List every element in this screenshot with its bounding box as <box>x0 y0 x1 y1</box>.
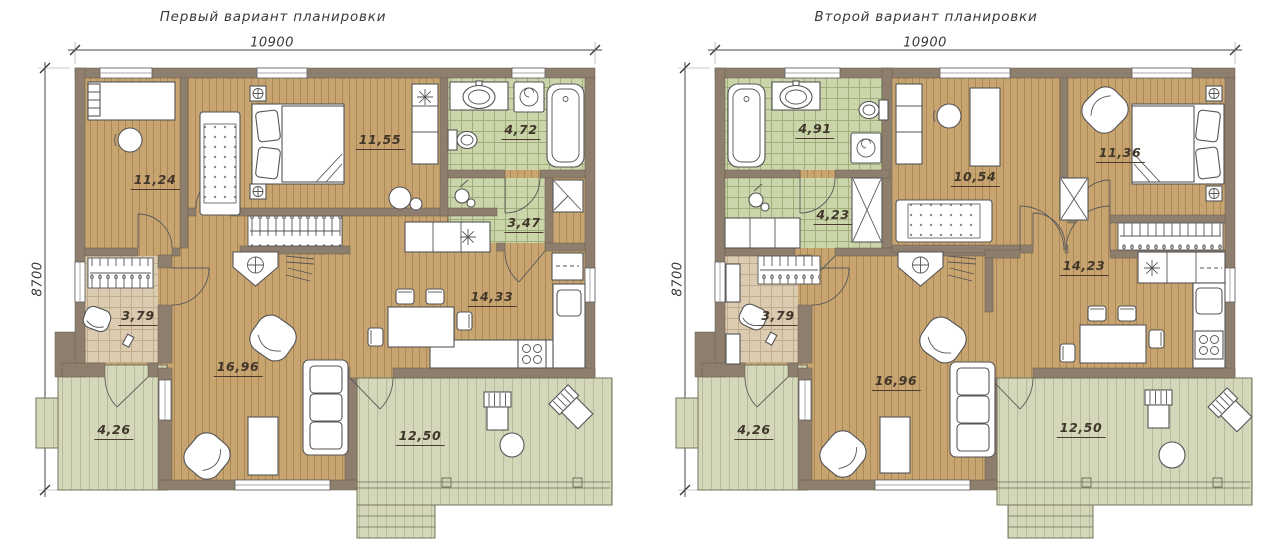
coffee-table <box>248 417 278 475</box>
floor-plan-drawing-2 <box>640 0 1280 547</box>
room-label-study: 11,24 <box>131 172 180 190</box>
room-label-terrace: 12,50 <box>1057 420 1106 438</box>
bathtub-icon <box>547 84 584 167</box>
plan-variant-1: Первый вариант планировки 10900 8700 11,… <box>0 0 640 547</box>
room-label-bedroom: 11,36 <box>1096 145 1145 163</box>
chair-icon <box>457 312 472 330</box>
chair-icon <box>396 289 414 304</box>
stool-icon <box>389 187 411 209</box>
floor-plan-drawing-1 <box>0 0 640 547</box>
room-label-bedroom: 11,55 <box>356 132 405 150</box>
width-dimension: 10900 <box>250 36 294 51</box>
chair-icon <box>1149 330 1164 348</box>
room-label-porch: 4,26 <box>94 422 133 440</box>
room-label-bathroom: 4,91 <box>795 121 834 139</box>
room-label-living: 16,96 <box>872 373 921 391</box>
room-label-bathroom: 4,72 <box>501 122 540 140</box>
terrace-steps <box>357 505 435 538</box>
width-dimension: 10900 <box>903 36 947 51</box>
floor-plan-sheet: { "plans": [ { "title": "Первый вариант … <box>0 0 1280 547</box>
room-label-entry: 3,79 <box>118 308 157 326</box>
stove-icon <box>1195 331 1223 359</box>
desk <box>88 82 175 120</box>
room-label-porch: 4,26 <box>734 422 773 440</box>
deck-chair-icon <box>484 392 511 430</box>
sofa-icon <box>303 360 348 455</box>
wardrobe <box>896 84 922 164</box>
side-step <box>36 398 58 448</box>
bed-icon <box>252 104 344 184</box>
chair-icon <box>1060 344 1075 362</box>
quilted-sofa-icon <box>896 200 992 242</box>
plan-title: Второй вариант планировки <box>814 9 1037 25</box>
room-label-kitchen: 14,23 <box>1060 258 1109 276</box>
dining-table <box>388 307 454 347</box>
deck-chair-icon <box>1145 390 1172 428</box>
toilet-icon <box>859 100 888 120</box>
chair-icon <box>368 328 383 346</box>
stove-icon <box>518 340 546 368</box>
sofa-icon <box>950 362 995 457</box>
room-label-entry: 3,79 <box>758 308 797 326</box>
kitchen-counter <box>405 222 490 252</box>
fridge <box>552 253 583 280</box>
room-label-kitchen: 14,33 <box>468 289 517 307</box>
nightstand-icon <box>1206 86 1222 101</box>
chair-icon <box>1118 306 1136 321</box>
room-label-study: 10,54 <box>951 169 1000 187</box>
room-label-terrace: 12,50 <box>396 428 445 446</box>
round-table-icon <box>500 433 524 457</box>
desk <box>970 88 1000 166</box>
bathtub-icon <box>728 84 765 167</box>
plan-title: Первый вариант планировки <box>160 9 387 25</box>
room-label-living: 16,96 <box>214 359 263 377</box>
nightstand-icon <box>1206 186 1222 201</box>
washing-machine-icon <box>851 133 881 163</box>
dining-table <box>1080 325 1146 363</box>
hanger-closet <box>1118 223 1223 250</box>
round-table-icon <box>1159 442 1185 468</box>
height-dimension: 8700 <box>671 261 686 296</box>
bed-icon <box>1132 104 1224 184</box>
plan-variant-2: Второй вариант планировки 10900 8700 4,9… <box>640 0 1280 547</box>
nightstand-icon <box>250 184 266 199</box>
quilted-sofa-icon <box>200 112 240 215</box>
height-dimension: 8700 <box>31 261 46 296</box>
plant-icon <box>417 89 433 105</box>
room-label-hall: 4,23 <box>813 207 852 225</box>
chair-icon <box>426 289 444 304</box>
chair-icon <box>1088 306 1106 321</box>
room-label-hall: 3,47 <box>504 215 543 233</box>
laundry-counter <box>725 218 800 248</box>
terrace-steps <box>1008 505 1093 538</box>
washing-machine-icon <box>514 82 544 112</box>
toilet-icon <box>448 130 477 150</box>
side-step <box>676 398 698 448</box>
kitchen-sink <box>1196 288 1222 314</box>
hob-symbol-icon <box>460 229 476 245</box>
hob-symbol-icon <box>1144 260 1160 276</box>
kitchen-sink <box>557 290 581 316</box>
coffee-table <box>880 417 910 473</box>
nightstand-icon <box>250 86 266 101</box>
